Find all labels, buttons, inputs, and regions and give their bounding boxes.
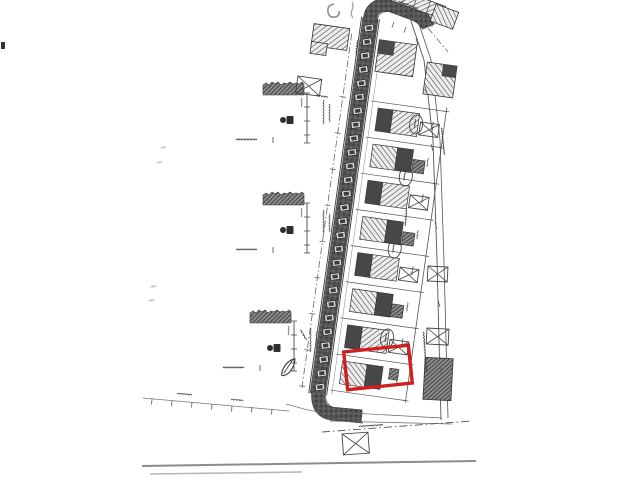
handwritten-mark	[328, 4, 339, 17]
centerline-extension	[428, 28, 448, 52]
building-top-left	[310, 24, 350, 59]
parking-bay	[334, 245, 344, 253]
scan-speck	[1, 42, 5, 49]
building-bottom-right	[423, 357, 453, 400]
house-footprint	[370, 144, 414, 172]
parking-bay	[315, 383, 325, 391]
parking-bay	[349, 135, 359, 143]
parking-bay	[347, 148, 357, 156]
garage-x-box	[419, 122, 440, 138]
pencil-squiggle	[351, 2, 353, 18]
scan-smudges	[148, 146, 167, 301]
house-footprint	[365, 180, 410, 209]
parking-bay	[364, 24, 374, 32]
parking-bay	[355, 93, 365, 101]
shed-block	[390, 304, 404, 319]
garage-x-box	[398, 267, 419, 283]
parking-bay	[317, 369, 327, 377]
page-edge-line	[142, 461, 476, 466]
illegible-plot-label	[426, 158, 428, 167]
parking-bay	[336, 231, 346, 239]
illegible-plot-label	[406, 302, 408, 311]
parking-bay	[353, 107, 363, 115]
parking-bay	[321, 342, 331, 350]
dimension-tick	[392, 22, 394, 28]
parking-bay	[357, 79, 367, 87]
dimension-tick	[404, 27, 406, 33]
house-footprint	[355, 253, 400, 282]
parking-bay	[323, 328, 333, 336]
street-cross-sections	[223, 82, 330, 371]
parking-bay	[340, 204, 350, 212]
left-dimension-line	[143, 398, 289, 411]
illegible-plot-label	[416, 230, 418, 239]
scan-smudge	[160, 146, 167, 148]
parking-bay	[362, 38, 372, 46]
scan-smudge	[156, 161, 163, 163]
parking-bay	[345, 162, 355, 170]
parking-bay	[330, 273, 340, 281]
house-footprint	[350, 289, 394, 317]
dimension-tick	[431, 144, 433, 151]
parking-bay	[326, 300, 336, 308]
parking-bay	[319, 356, 329, 364]
parking-bay	[351, 121, 361, 129]
scan-smudge	[148, 299, 155, 301]
street-cross-section	[236, 82, 330, 143]
parking-bay	[332, 259, 342, 267]
garage-x-box	[342, 432, 369, 455]
illegible-plot-label	[411, 266, 413, 275]
building-plot-1	[375, 40, 417, 77]
house-footprint	[360, 216, 404, 244]
garage-x-box	[409, 195, 430, 211]
illegible-text	[441, 128, 445, 155]
house-footprint	[375, 108, 420, 137]
parking-bay	[325, 314, 335, 322]
illegible-text	[300, 330, 307, 341]
parking-bay	[328, 287, 338, 295]
illegible-text	[231, 399, 243, 401]
plot-boundary	[330, 390, 405, 401]
parking-bay	[360, 52, 370, 60]
illegible-text	[359, 424, 383, 427]
scan-smudge	[150, 285, 157, 287]
illegible-plot-label	[421, 194, 423, 203]
street-cross-section	[236, 192, 330, 253]
street-cross-section	[223, 310, 317, 371]
parking-bay	[358, 66, 368, 74]
shed-block	[411, 159, 425, 174]
parking-bay	[343, 176, 353, 184]
shed-block	[401, 232, 415, 247]
illegible-text	[405, 208, 407, 226]
building-plot-2	[423, 62, 457, 98]
road-bottom-curve	[318, 392, 362, 417]
parking-bay	[338, 218, 348, 226]
illegible-text	[177, 393, 192, 395]
parking-bay	[341, 190, 351, 198]
shed-block	[388, 368, 398, 380]
scanned-site-plan-page	[0, 0, 640, 480]
site-plan-drawing	[0, 0, 640, 480]
page-edge-line-2	[150, 472, 302, 474]
